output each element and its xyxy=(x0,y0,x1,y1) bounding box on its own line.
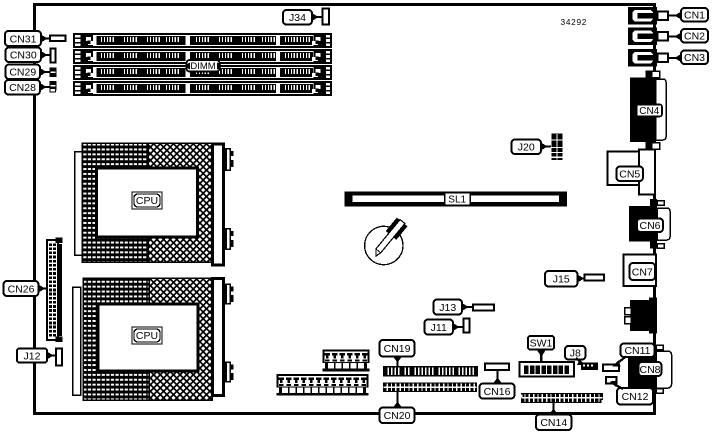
svg-text:CN16: CN16 xyxy=(484,386,511,398)
svg-text:DIMM: DIMM xyxy=(190,61,215,72)
svg-text:SL1: SL1 xyxy=(448,194,466,205)
svg-text:J20: J20 xyxy=(518,142,535,154)
svg-text:J15: J15 xyxy=(553,274,570,286)
svg-text:CN11: CN11 xyxy=(624,345,650,357)
svg-text:CN4: CN4 xyxy=(639,106,659,117)
svg-text:J11: J11 xyxy=(431,322,447,334)
svg-text:CN5: CN5 xyxy=(619,169,640,181)
svg-text:CN6: CN6 xyxy=(639,220,660,232)
svg-text:CN3: CN3 xyxy=(684,52,705,64)
svg-text:CN12: CN12 xyxy=(622,391,649,403)
svg-text:CN1: CN1 xyxy=(684,10,705,22)
svg-text:J12: J12 xyxy=(24,350,41,362)
svg-text:CN29: CN29 xyxy=(9,67,36,79)
svg-text:J34: J34 xyxy=(289,12,306,24)
svg-text:CN28: CN28 xyxy=(9,82,36,94)
svg-text:CN14: CN14 xyxy=(540,417,567,429)
svg-text:J13: J13 xyxy=(439,302,456,314)
svg-text:CN19: CN19 xyxy=(384,343,411,355)
svg-text:CN31: CN31 xyxy=(10,33,37,45)
svg-text:CN2: CN2 xyxy=(684,31,705,43)
svg-text:CN7: CN7 xyxy=(632,266,653,278)
svg-text:CN26: CN26 xyxy=(8,283,35,295)
svg-text:J8: J8 xyxy=(570,348,581,360)
svg-text:SW1: SW1 xyxy=(530,338,553,350)
svg-text:CPU: CPU xyxy=(136,195,158,207)
svg-text:CN30: CN30 xyxy=(10,50,37,62)
svg-text:34292: 34292 xyxy=(561,17,588,27)
svg-text:CN20: CN20 xyxy=(384,410,411,422)
svg-text:CN8: CN8 xyxy=(639,364,660,376)
svg-text:CPU: CPU xyxy=(136,330,158,342)
